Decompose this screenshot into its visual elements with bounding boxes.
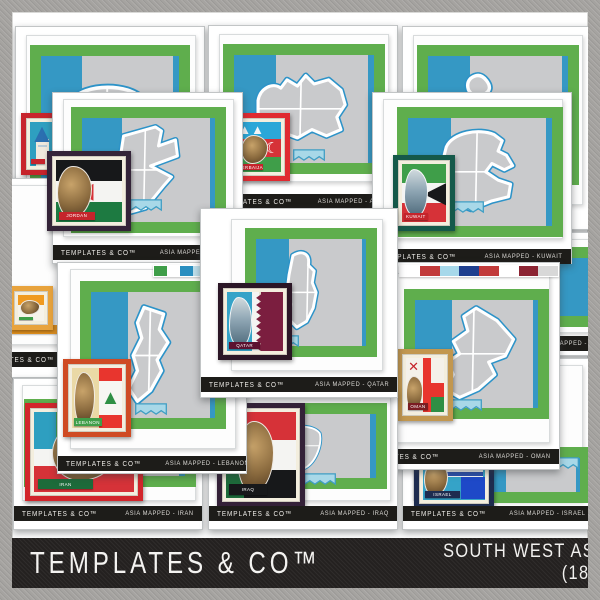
strip-country-label: ASIA MAPPED - IRAN bbox=[126, 510, 194, 517]
badge-flag-collage bbox=[18, 295, 44, 321]
flag-part bbox=[38, 145, 47, 147]
washi-flag-strip bbox=[399, 265, 559, 277]
badge-flag-collage: ◀JORDAN bbox=[56, 160, 122, 222]
badge-country-banner: LEBANON bbox=[74, 418, 102, 425]
banner-ribbon bbox=[134, 401, 168, 422]
badge-country-banner bbox=[31, 159, 45, 164]
banner-ribbon bbox=[449, 397, 483, 418]
flag-badge-kuwait: ◀KUWAIT bbox=[393, 155, 455, 231]
banner-ribbon bbox=[292, 147, 326, 168]
flag-chip bbox=[180, 266, 193, 276]
preview-canvas: ▲☾▲▲AZERBAIJANTEMPLATES & CO™ASIA MAPPED… bbox=[12, 12, 588, 588]
badge-flag-collage: ☾▲▲AZERBAIJAN bbox=[237, 122, 281, 172]
flag-chip bbox=[167, 266, 180, 276]
strip-country-label: ASIA MAPPED - KUWAIT bbox=[485, 253, 563, 260]
flag-chip bbox=[459, 266, 479, 276]
banner-ribbon-icon bbox=[303, 471, 337, 487]
strip-country-label: ASIA MAPPED - QATAR bbox=[315, 381, 389, 388]
badge-country-banner: ISRAEL bbox=[425, 491, 459, 497]
product-title-line2: (18 MAP SETS} bbox=[444, 563, 588, 585]
strip-country-label: ASIA MAPPED - ISRAEL bbox=[510, 510, 586, 517]
washi-flag-strip bbox=[153, 265, 207, 277]
badge-flag-collage: ◀KUWAIT bbox=[402, 164, 446, 222]
badge-country-banner: IRAN bbox=[38, 479, 93, 489]
card-qatar: QATARTEMPLATES & CO™ASIA MAPPED - QATAR bbox=[200, 208, 398, 398]
badge-flag-collage: QATAR bbox=[227, 292, 283, 351]
flag-part: ▲ bbox=[100, 381, 121, 415]
map-photo-area bbox=[560, 258, 588, 316]
flag-chip bbox=[154, 266, 167, 276]
flag-part: ◀ bbox=[425, 164, 446, 222]
strip-brand-label: TEMPLATES & CO™ bbox=[209, 380, 284, 389]
strip-country-label: ASIA MAPPED - IRAQ bbox=[320, 510, 389, 517]
map-silhouette-georgia-3 bbox=[565, 259, 588, 315]
flag-part bbox=[256, 292, 283, 351]
flag-part: ▲ bbox=[34, 123, 51, 142]
flag-badge-qatar: QATAR bbox=[218, 283, 292, 360]
flag-badge-oman: ✕OMAN bbox=[397, 349, 453, 421]
flag-part bbox=[431, 397, 444, 412]
product-preview-image: ▲☾▲▲AZERBAIJANTEMPLATES & CO™ASIA MAPPED… bbox=[0, 0, 600, 600]
landmark-photo-cutout bbox=[229, 297, 251, 348]
flag-chip bbox=[420, 266, 440, 276]
brand-logo-text: TEMPLATES & CO™ bbox=[30, 545, 320, 581]
flag-part bbox=[99, 415, 122, 428]
strip-brand-label: TEMPLATES & CO™ bbox=[411, 509, 486, 518]
flag-badge-cyprus bbox=[12, 286, 53, 330]
strip-brand-label: TEMPLATES & CO™ bbox=[217, 509, 292, 518]
flag-part bbox=[423, 383, 444, 397]
badge-country-banner: KUWAIT bbox=[404, 213, 428, 220]
flag-chip bbox=[400, 266, 420, 276]
banner-ribbon-icon bbox=[129, 197, 163, 213]
flag-part: ✕ bbox=[407, 358, 421, 374]
product-title-line1: SOUTH WEST ASIA MAPPED bbox=[444, 541, 588, 563]
label-strip-qatar: TEMPLATES & CO™ASIA MAPPED - QATAR bbox=[201, 377, 397, 392]
label-strip-iran: TEMPLATES & CO™ASIA MAPPED - IRAN bbox=[14, 506, 202, 521]
strip-country-label: ASIA MAPPED - LEBANON bbox=[166, 460, 246, 467]
footer-banner: TEMPLATES & CO™ SOUTH WEST ASIA MAPPED (… bbox=[12, 538, 588, 588]
flag-part bbox=[444, 472, 482, 476]
banner-ribbon-icon bbox=[449, 397, 483, 413]
flag-chip bbox=[440, 266, 460, 276]
flag-badge-lebanon: ▲LEBANON bbox=[63, 359, 131, 437]
flag-badge-jordan: ◀JORDAN bbox=[47, 151, 131, 231]
banner-ribbon-icon bbox=[292, 147, 326, 163]
banner-ribbon bbox=[451, 199, 485, 220]
badge-country-banner: QATAR bbox=[229, 342, 260, 349]
flag-chip bbox=[479, 266, 499, 276]
flag-part bbox=[99, 368, 122, 381]
banner-ribbon-icon bbox=[451, 199, 485, 215]
banner-ribbon-icon bbox=[134, 401, 168, 417]
badge-country-banner: IRAQ bbox=[229, 484, 268, 494]
strip-brand-label: TEMPLATES & CO™ bbox=[66, 459, 141, 468]
badge-flag-collage: ▲LEBANON bbox=[72, 368, 122, 428]
flag-chip bbox=[519, 266, 539, 276]
banner-ribbon bbox=[303, 471, 337, 492]
badge-country-banner bbox=[19, 317, 33, 320]
flag-chip bbox=[538, 266, 558, 276]
banner-ribbon bbox=[129, 197, 163, 218]
strip-brand-label: TEMPLATES & CO™ bbox=[22, 509, 97, 518]
label-strip-israel: TEMPLATES & CO™ASIA MAPPED - ISRAEL bbox=[403, 506, 588, 521]
strip-brand-label: TEMPLATES & CO™ bbox=[61, 248, 136, 257]
strip-country-label: ASIA MAPPED - OMAN bbox=[479, 453, 551, 460]
label-strip-iraq: TEMPLATES & CO™ASIA MAPPED - IRAQ bbox=[209, 506, 397, 521]
product-title: SOUTH WEST ASIA MAPPED (18 MAP SETS} bbox=[444, 541, 588, 586]
card-kuwait: ◀KUWAITTEMPLATES & CO™ASIA MAPPED - KUWA… bbox=[372, 92, 572, 264]
flag-chip bbox=[499, 266, 519, 276]
badge-country-banner: JORDAN bbox=[59, 212, 95, 219]
badge-country-banner: OMAN bbox=[408, 403, 429, 409]
flag-part bbox=[461, 477, 485, 499]
badge-flag-collage: ✕OMAN bbox=[406, 358, 444, 412]
strip-brand-label: TEMPLATES & CO™ bbox=[12, 355, 54, 364]
label-strip-lebanon: TEMPLATES & CO™ASIA MAPPED - LEBANON bbox=[58, 456, 246, 471]
